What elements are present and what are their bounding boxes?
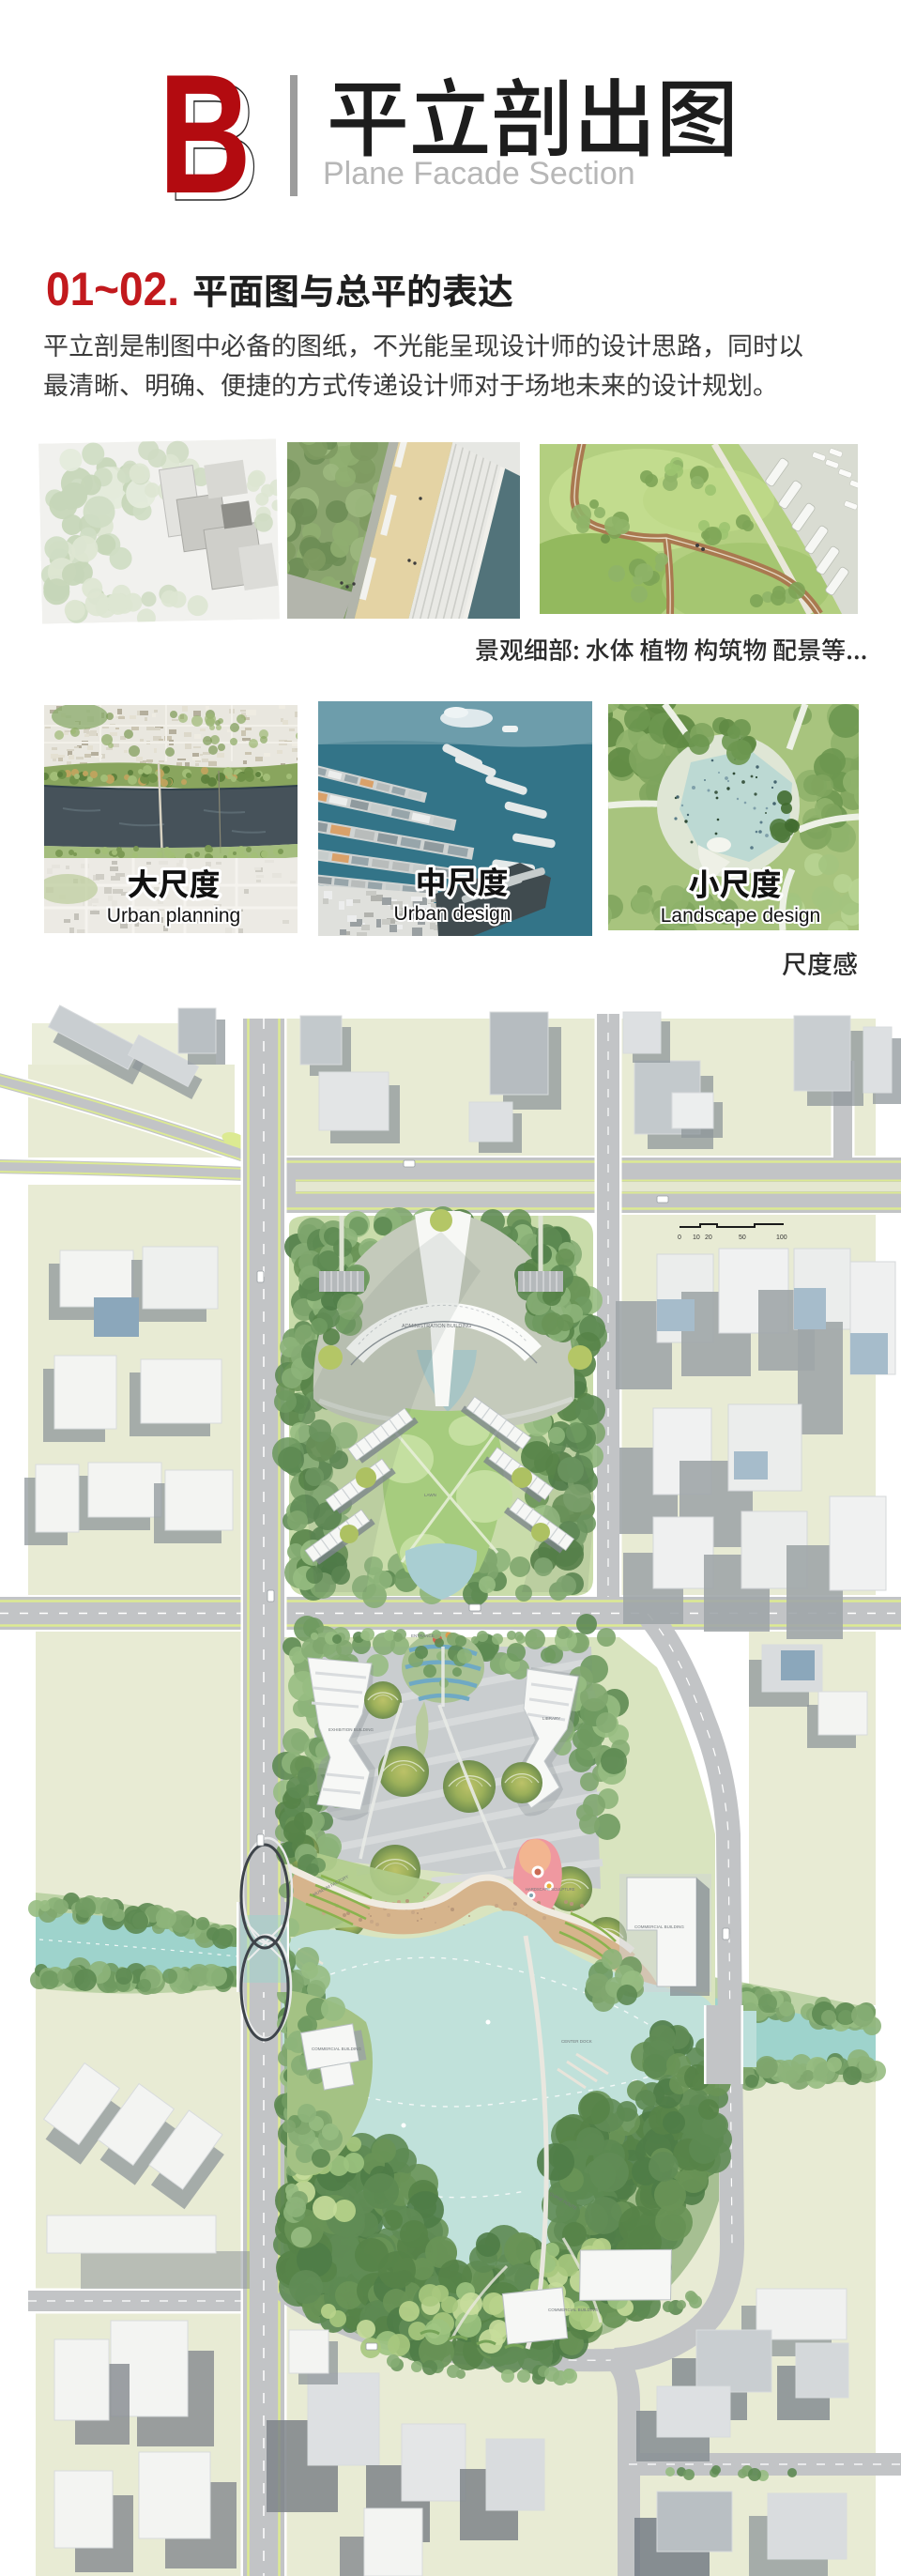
svg-text:EXHIBITION BUILDING: EXHIBITION BUILDING — [328, 1727, 374, 1732]
svg-text:HARDSCAPE SCULPTURE: HARDSCAPE SCULPTURE — [526, 1887, 575, 1892]
svg-text:ADMINISTRATION BUILDING: ADMINISTRATION BUILDING — [402, 1324, 471, 1329]
svg-text:CENTER DOCK: CENTER DOCK — [561, 2039, 592, 2044]
svg-text:ENTRANCE: ENTRANCE — [411, 1633, 435, 1638]
svg-text:COMMERCIAL BUILDING: COMMERCIAL BUILDING — [634, 1924, 684, 1929]
svg-text:100: 100 — [776, 1234, 787, 1241]
svg-text:Urban design: Urban design — [394, 903, 512, 925]
svg-text:Landscape design: Landscape design — [661, 905, 820, 927]
svg-text:Urban planning: Urban planning — [107, 905, 240, 927]
svg-text:COMMERCIAL BUILDING: COMMERCIAL BUILDING — [312, 2047, 361, 2051]
svg-text:20: 20 — [705, 1234, 712, 1241]
svg-text:50: 50 — [739, 1234, 746, 1241]
svg-text:10: 10 — [693, 1234, 700, 1241]
svg-text:LIBRARY: LIBRARY — [542, 1716, 560, 1721]
svg-text:LAWN: LAWN — [424, 1493, 436, 1497]
svg-text:0: 0 — [678, 1234, 681, 1241]
svg-text:COMMERCIAL BUILDING: COMMERCIAL BUILDING — [548, 2308, 598, 2312]
